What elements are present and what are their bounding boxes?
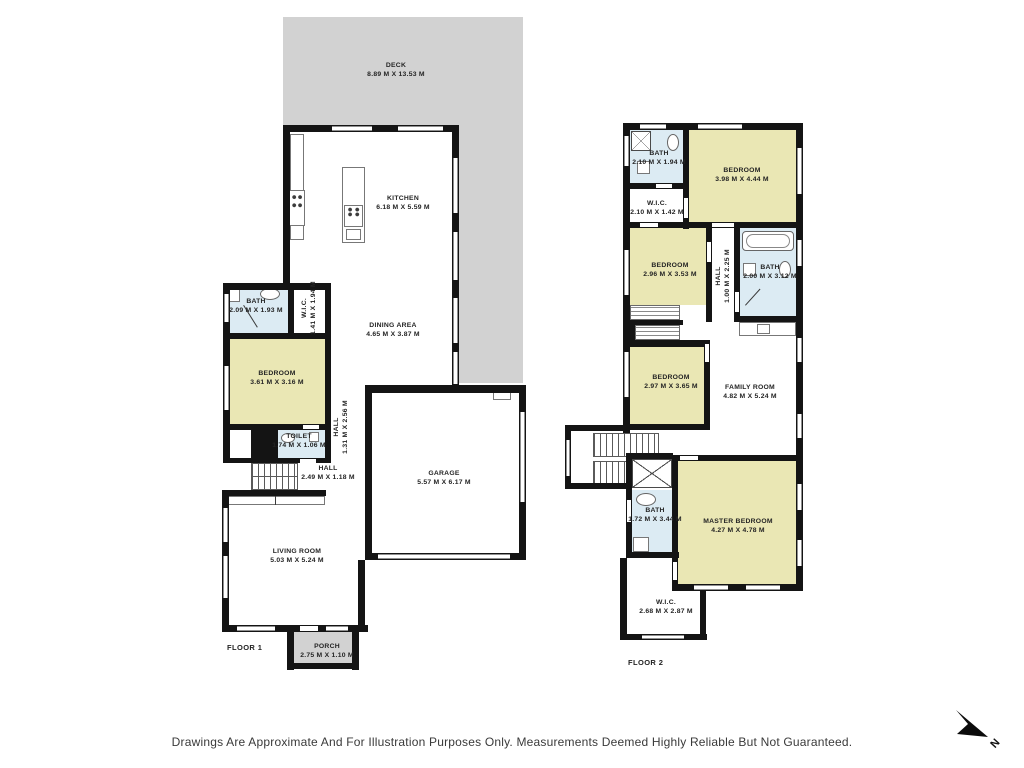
wall [620,558,627,640]
room-dims: 2.68 M X 2.87 M [639,607,693,616]
room-name: MASTER BEDROOM [703,517,773,526]
room-dims: 2.96 M X 3.53 M [643,270,697,279]
room-dims: 2.00 M X 3.12 M [743,272,797,281]
room-dims: 1.41 M X 1.94 M [309,281,318,335]
window [453,158,458,213]
room-dims: 1.00 M X 2.25 M [723,249,732,303]
closet-divider [275,496,276,505]
room-label-wic: W.I.C. 2.10 M X 1.42 M [630,199,684,217]
wall [734,316,803,322]
wall [672,584,803,591]
room-name: BATH [628,506,682,515]
room-dims: 3.61 M X 3.16 M [250,378,304,387]
room-name: GARAGE [417,469,471,478]
room-dims: 5.03 M X 5.24 M [270,556,324,565]
room-label-bath: BATH 2.10 M X 1.94 M [632,149,686,167]
garage-door [378,554,510,559]
room-label-bath: BATH 2.00 M X 3.12 M [743,263,797,281]
room-label-wic: W.I.C. 2.68 M X 2.87 M [639,598,693,616]
room-dims: 2.75 M X 1.10 M [300,651,354,660]
room-name: BEDROOM [715,166,769,175]
sink-icon [346,229,361,240]
room-label-master-bedroom: MASTER BEDROOM 4.27 M X 4.78 M [703,517,773,535]
wall [358,560,365,632]
room-name: DECK [367,61,425,70]
room-label-hall: HALL 2.49 M X 1.18 M [301,464,355,482]
room-name: DINING AREA [366,321,420,330]
window [797,338,802,362]
window [624,136,629,166]
wall [288,283,294,339]
island-cooktop-icon [344,205,363,227]
room-name: LIVING ROOM [270,547,324,556]
room-label-hall: HALL 1.00 M X 2.25 M [714,249,732,303]
window [326,626,348,631]
window [642,635,684,639]
room-name: BATH [743,263,797,272]
wall [287,663,359,669]
room-name: BEDROOM [643,261,697,270]
shower-icon [631,131,651,151]
room-label-bedroom: BEDROOM 2.96 M X 3.53 M [643,261,697,279]
room-label-hall-upper: HALL 1.31 M X 2.56 M [332,400,350,454]
window [453,232,458,280]
wall [365,388,372,560]
room-label-toilet: TOILET 1.74 M X 1.06 M [272,432,326,450]
wall [325,283,331,463]
window [797,414,802,438]
window [398,126,443,131]
window [698,124,742,129]
room-label-deck: DECK 8.89 M X 13.53 M [367,61,425,79]
room-name: HALL [332,400,341,454]
window [453,298,458,343]
floor1-tag: FLOOR 1 [227,643,262,652]
floorplan-canvas: DECK 8.89 M X 13.53 M KITCHEN 6.18 M X 5… [0,0,1024,768]
wall [628,325,635,340]
closet [635,325,680,340]
window [624,250,629,295]
room-dims: 4.27 M X 4.78 M [703,526,773,535]
room-name: BEDROOM [250,369,304,378]
room-label-garage: GARAGE 5.57 M X 6.17 M [417,469,471,487]
wall [626,453,673,459]
room-label-kitchen: KITCHEN 6.18 M X 5.59 M [376,194,430,212]
room-dims: 4.82 M X 5.24 M [723,392,777,401]
window [566,440,570,476]
compass-arrow-icon [956,710,988,737]
room-label-dining: DINING AREA 4.65 M X 3.87 M [366,321,420,339]
wall [700,590,706,640]
room-name: KITCHEN [376,194,430,203]
wall [623,340,710,347]
room-label-bedroom: BEDROOM 3.98 M X 4.44 M [715,166,769,184]
room-dims: 1.72 M X 3.44 M [628,515,682,524]
room-label-bath: BATH 1.72 M X 3.44 M [628,506,682,524]
room-dims: 3.98 M X 4.44 M [715,175,769,184]
window [624,352,629,397]
room-name: PORCH [300,642,354,651]
room-dims: 2.09 M X 1.93 M [229,306,283,315]
compass-label: N [988,737,1002,751]
room-label-bedroom: BEDROOM 2.97 M X 3.65 M [644,373,698,391]
room-name: BEDROOM [644,373,698,382]
window [797,240,802,266]
door-gap [300,626,318,631]
door-gap [707,242,711,262]
room-name: FAMILY ROOM [723,383,777,392]
room-label-porch: PORCH 2.75 M X 1.10 M [300,642,354,660]
room-name: W.I.C. [630,199,684,208]
room-name: BATH [632,149,686,158]
window [453,352,458,384]
room-label-bath: BATH 2.09 M X 1.93 M [229,297,283,315]
window [797,484,802,510]
stove-icon [289,190,305,226]
room-dims: 2.97 M X 3.65 M [644,382,698,391]
door-gap [640,223,658,227]
window [237,626,275,631]
room-label-wic: W.I.C. 1.41 M X 1.94 M [300,281,318,335]
window [223,556,228,598]
compass-north-arrow: N [945,700,1015,760]
door-gap [735,292,739,312]
door-gap [300,459,316,463]
room-dims: 4.65 M X 3.87 M [366,330,420,339]
window [694,585,728,590]
room-name: HALL [301,464,355,473]
closet [227,496,325,505]
sink-icon [757,324,770,334]
window [797,148,802,194]
room-label-family: FAMILY ROOM 4.82 M X 5.24 M [723,383,777,401]
room-dims: 2.10 M X 1.42 M [630,208,684,217]
disclaimer-text: Drawings Are Approximate And For Illustr… [0,735,1024,749]
room-name: W.I.C. [300,281,309,335]
linen-closet [632,459,672,488]
room-dims: 5.57 M X 6.17 M [417,478,471,487]
window [520,412,525,502]
door-gap [303,425,319,429]
wall [623,424,710,430]
wall [283,125,290,283]
door-gap [705,344,709,362]
room-dims: 1.74 M X 1.06 M [272,441,326,450]
room-dims: 6.18 M X 5.59 M [376,203,430,212]
room-name: W.I.C. [639,598,693,607]
wall [223,490,326,496]
room-name: TOILET [272,432,326,441]
window [224,366,229,410]
window [223,508,228,542]
closet [630,305,680,320]
window [746,585,780,590]
wall [623,183,683,189]
room-dims: 2.49 M X 1.18 M [301,473,355,482]
wall [565,425,627,431]
room-name: HALL [714,249,723,303]
bathtub-icon [742,231,794,251]
toilet-icon [636,493,656,506]
door-gap [656,184,672,188]
wall [365,385,526,393]
room-name: BATH [229,297,283,306]
floor2-tag: FLOOR 2 [628,658,663,667]
door-gap [712,223,734,227]
door-gap [680,456,698,460]
window [332,126,372,131]
window [797,540,802,566]
door-gap [684,198,688,218]
door-gap [673,562,677,580]
wall [565,483,632,489]
room-label-living: LIVING ROOM 5.03 M X 5.24 M [270,547,324,565]
room-dims: 8.89 M X 13.53 M [367,70,425,79]
room-dims: 1.31 M X 2.56 M [341,400,350,454]
sink-icon [633,537,649,552]
room-dims: 2.10 M X 1.94 M [632,158,686,167]
window [640,124,666,129]
wall [626,453,632,490]
stair-rail [251,476,298,477]
room-label-bedroom: BEDROOM 3.61 M X 3.16 M [250,369,304,387]
